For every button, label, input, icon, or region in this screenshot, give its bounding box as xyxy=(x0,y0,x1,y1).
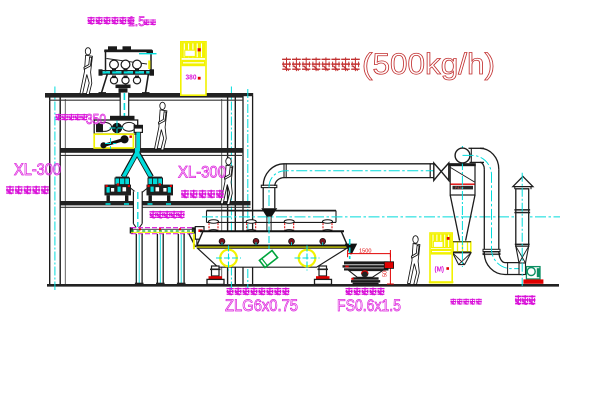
svg-text:350: 350 xyxy=(86,111,106,128)
svg-text:ZLG6x0.75: ZLG6x0.75 xyxy=(225,296,298,315)
svg-text:1.5: 1.5 xyxy=(128,13,145,29)
svg-text:1500: 1500 xyxy=(359,249,371,255)
svg-text:XL-300: XL-300 xyxy=(14,161,61,179)
svg-text:XL-300: XL-300 xyxy=(178,163,226,182)
svg-text:(500kg/h): (500kg/h) xyxy=(362,48,495,81)
svg-text:(M): (M) xyxy=(435,265,445,274)
svg-text:FS0.6x1.5: FS0.6x1.5 xyxy=(337,296,401,315)
svg-text:380: 380 xyxy=(186,72,197,81)
